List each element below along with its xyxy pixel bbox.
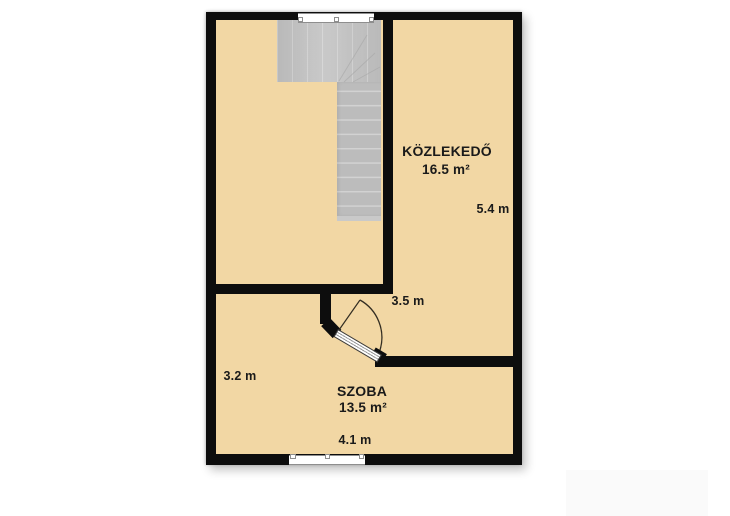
room-label-kozlekedo: KÖZLEKEDŐ xyxy=(402,145,492,158)
window-top-tick-middle xyxy=(334,17,340,23)
floor-plan-canvas: KÖZLEKEDŐ 16.5 m² 5.4 m 3.5 m 3.2 m SZOB… xyxy=(0,0,730,516)
staircase-upper-flight xyxy=(277,20,381,83)
background-artifact xyxy=(566,470,708,516)
room-area-kozlekedo: 16.5 m² xyxy=(422,163,470,176)
room-label-szoba: SZOBA xyxy=(337,385,387,398)
room-area-szoba: 13.5 m² xyxy=(339,401,387,414)
dimension-kozlekedo-bottom: 3.5 m xyxy=(392,295,425,308)
wall-szoba-top xyxy=(375,356,513,367)
staircase-lower-flight xyxy=(337,82,381,216)
dimension-szoba-bottom: 4.1 m xyxy=(339,434,372,447)
window-top-tick-left xyxy=(298,17,304,23)
dimension-kozlekedo-side: 5.4 m xyxy=(477,203,510,216)
window-top-tick-right xyxy=(369,17,375,23)
staircase-bottom-step xyxy=(337,216,381,221)
dimension-szoba-side: 3.2 m xyxy=(224,370,257,383)
wall-door-stub xyxy=(320,293,331,324)
wall-stairroom-bottom xyxy=(216,284,393,294)
window-bottom-tick-middle xyxy=(325,454,331,460)
wall-stairwell-vertical xyxy=(383,19,393,294)
window-bottom-tick-left xyxy=(290,454,296,460)
window-bottom-tick-right xyxy=(359,454,365,460)
